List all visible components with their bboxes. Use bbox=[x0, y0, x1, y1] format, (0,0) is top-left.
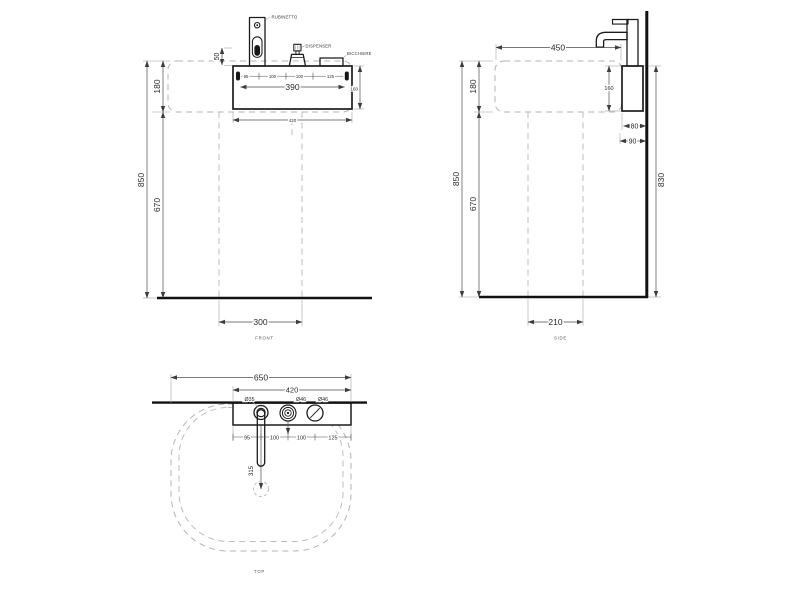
front-chain-100b: 100 bbox=[296, 74, 304, 79]
side-faucet bbox=[596, 20, 638, 67]
svg-text:180: 180 bbox=[152, 79, 162, 93]
top-view: 315 Ø35 Ø46 Ø46 bbox=[152, 372, 367, 574]
side-dim-450: 450 bbox=[496, 42, 621, 52]
svg-text:160: 160 bbox=[350, 87, 358, 92]
top-chain-125: 125 bbox=[328, 436, 337, 442]
svg-text:450: 450 bbox=[551, 42, 565, 52]
front-dim-50: 50 bbox=[214, 48, 222, 65]
side-dim-80: 80 bbox=[624, 123, 647, 130]
front-dispenser bbox=[289, 44, 305, 66]
glass-leader-line bbox=[343, 55, 346, 58]
top-hole-chain: 95 100 100 125 bbox=[233, 434, 351, 442]
dispenser-leader-line bbox=[301, 46, 304, 48]
top-label-glass-hole: Ø46 bbox=[318, 397, 328, 403]
top-label-dispenser-hole: Ø46 bbox=[296, 397, 306, 403]
front-dim-300: 300 bbox=[219, 317, 302, 327]
svg-text:180: 180 bbox=[468, 79, 478, 93]
svg-text:90: 90 bbox=[629, 138, 637, 145]
svg-text:390: 390 bbox=[285, 82, 299, 92]
side-view-label: SIDE bbox=[554, 336, 567, 341]
svg-text:50: 50 bbox=[214, 53, 221, 61]
svg-text:80: 80 bbox=[631, 123, 639, 130]
front-dim-670: 670 bbox=[152, 112, 163, 298]
top-chain-100b: 100 bbox=[297, 436, 306, 442]
front-glass bbox=[320, 58, 343, 66]
sink-technical-drawing: RUBINETTO DISPENSER BICCHIERE 95 100 100… bbox=[0, 0, 800, 600]
svg-text:420: 420 bbox=[289, 118, 297, 123]
dispenser-callout: DISPENSER bbox=[306, 43, 332, 48]
svg-text:420: 420 bbox=[286, 386, 299, 395]
top-label-faucet-hole: Ø35 bbox=[245, 397, 255, 403]
svg-text:670: 670 bbox=[152, 198, 162, 212]
svg-text:850: 850 bbox=[451, 172, 461, 186]
side-dim-830: 830 bbox=[656, 66, 666, 297]
svg-text:670: 670 bbox=[468, 197, 478, 211]
svg-text:650: 650 bbox=[254, 372, 268, 382]
top-dim-650: 650 bbox=[171, 372, 351, 382]
front-view-label: FRONT bbox=[255, 336, 274, 341]
side-dim-180: 180 bbox=[468, 61, 479, 112]
front-right-mount-hole bbox=[345, 72, 349, 81]
svg-text:300: 300 bbox=[253, 317, 267, 327]
top-view-label: TOP bbox=[254, 569, 265, 574]
front-chain-95: 95 bbox=[244, 74, 249, 79]
front-dim-420: 420 bbox=[233, 118, 352, 123]
technical-drawing-page: RUBINETTO DISPENSER BICCHIERE 95 100 100… bbox=[0, 0, 800, 600]
top-chain-100a: 100 bbox=[270, 436, 279, 442]
side-dim-670: 670 bbox=[468, 112, 479, 297]
side-dim-160: 160 bbox=[604, 66, 613, 111]
side-view: 450 180 850 670 160 80 90 bbox=[451, 11, 666, 341]
svg-text:830: 830 bbox=[656, 173, 666, 187]
front-dim-180: 180 bbox=[152, 61, 163, 112]
top-chain-95: 95 bbox=[244, 436, 250, 442]
top-dispenser-hole bbox=[280, 405, 296, 421]
front-chain-100a: 100 bbox=[269, 74, 277, 79]
front-pedestal-hidden-lines bbox=[219, 112, 302, 298]
svg-text:315: 315 bbox=[249, 465, 255, 476]
faucet-callout: RUBINETTO bbox=[272, 14, 298, 19]
side-shelf-box bbox=[622, 66, 643, 111]
side-basin-hidden-outline bbox=[495, 61, 622, 112]
svg-text:850: 850 bbox=[136, 173, 146, 187]
front-view: RUBINETTO DISPENSER BICCHIERE 95 100 100… bbox=[136, 14, 372, 340]
front-faucet bbox=[250, 18, 266, 67]
front-left-mount-hole bbox=[236, 72, 240, 81]
glass-callout: BICCHIERE bbox=[347, 51, 372, 56]
side-dim-850: 850 bbox=[451, 61, 462, 297]
side-pedestal-hidden-lines bbox=[528, 112, 583, 297]
top-dim-420: 420 bbox=[233, 386, 351, 395]
front-chain-125: 125 bbox=[327, 74, 335, 79]
faucet-leader-line bbox=[266, 17, 271, 20]
svg-text:210: 210 bbox=[548, 317, 562, 327]
front-dim-850: 850 bbox=[136, 61, 147, 298]
side-dim-90: 90 bbox=[620, 138, 646, 145]
side-dim-210: 210 bbox=[528, 317, 583, 327]
svg-text:160: 160 bbox=[604, 86, 613, 92]
